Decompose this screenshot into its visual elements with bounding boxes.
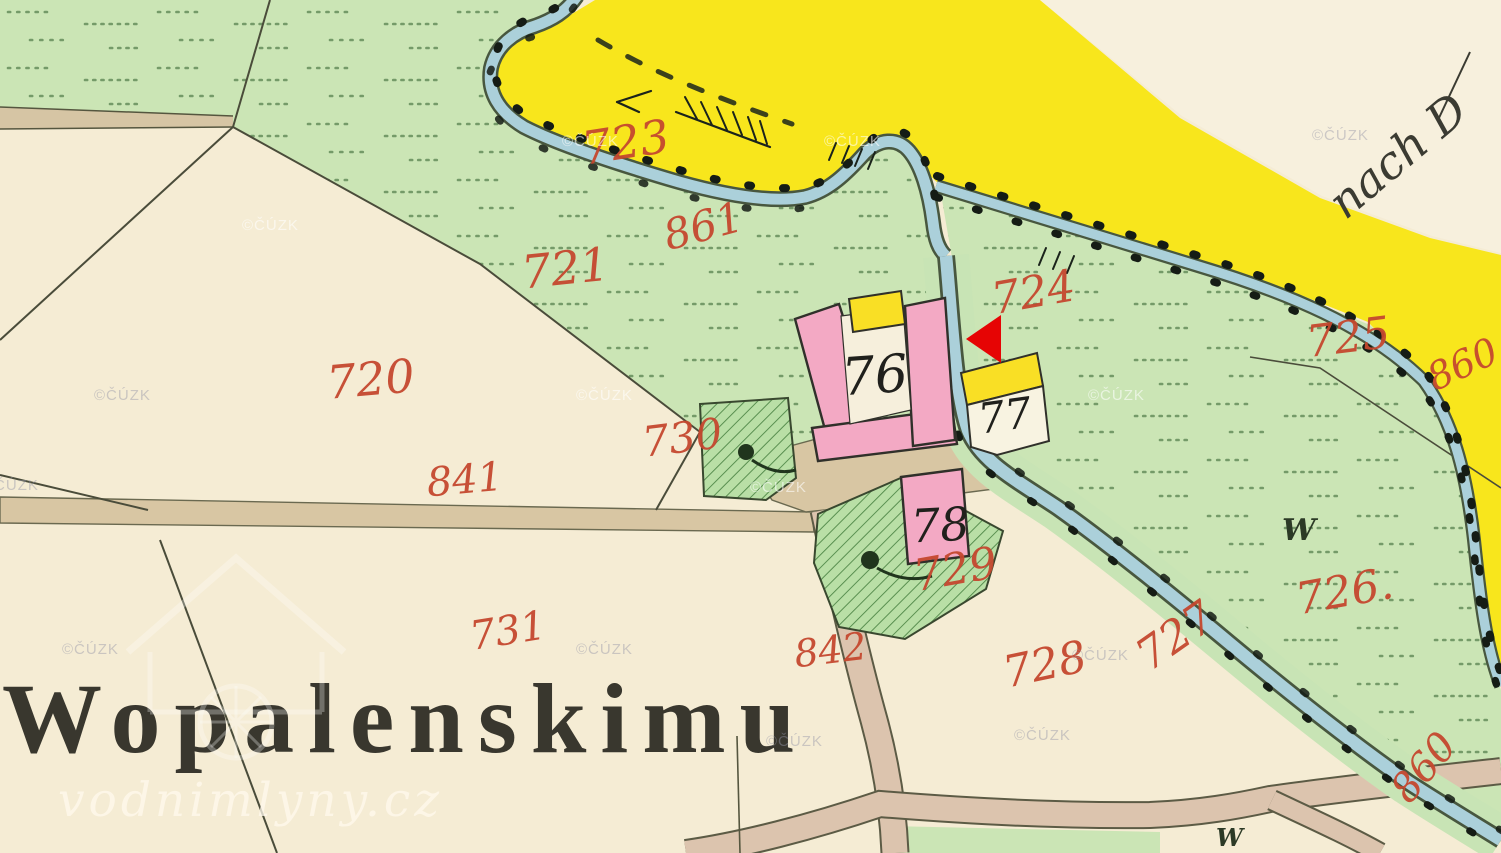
copyright-watermark: ©ČÚZK — [824, 133, 881, 150]
map-canvas: W W 723 861 721 720 724 725 730 841 731 … — [0, 0, 1501, 853]
copyright-watermark: ©ČÚZK — [62, 641, 119, 658]
cadastral-map: W W 723 861 721 720 724 725 730 841 731 … — [0, 0, 1501, 853]
copyright-watermark: ©ČÚZK — [0, 477, 39, 494]
site-watermark-text: vodnimlyny.cz — [58, 773, 443, 828]
tree-symbol — [738, 444, 754, 460]
building-number-78: 78 — [910, 497, 971, 554]
copyright-watermark: ©ČÚZK — [562, 133, 619, 150]
parcel-label-730: 730 — [639, 408, 725, 466]
copyright-watermark: ©ČÚZK — [242, 217, 299, 234]
copyright-watermark: ©ČÚZK — [1072, 647, 1129, 664]
building-number-76: 76 — [840, 344, 910, 408]
tree-symbol — [861, 551, 879, 569]
copyright-watermark: ©ČÚZK — [766, 733, 823, 750]
copyright-watermark: ©ČÚZK — [1312, 127, 1369, 144]
parcel-label-725: 725 — [1303, 307, 1393, 368]
parcel-label-841: 841 — [425, 454, 505, 506]
copyright-watermark: ©ČÚZK — [1088, 387, 1145, 404]
copyright-watermark: ©ČÚZK — [576, 641, 633, 658]
parcel-label-721: 721 — [519, 237, 612, 300]
building-number-77: 77 — [975, 388, 1035, 444]
copyright-watermark: ©ČÚZK — [94, 387, 151, 404]
copyright-watermark: ©ČÚZK — [1014, 727, 1071, 744]
building-76-roof — [849, 291, 905, 332]
meadow-symbol-w: W — [1282, 513, 1319, 548]
parcel-label-720: 720 — [325, 348, 417, 409]
copyright-watermark: ©ČÚZK — [750, 479, 807, 496]
meadow-symbol-w: W — [1216, 823, 1245, 852]
building-76-right-wing — [905, 298, 955, 446]
place-name-label: Wopalenskimu — [2, 663, 809, 774]
copyright-watermark: ©ČÚZK — [576, 387, 633, 404]
